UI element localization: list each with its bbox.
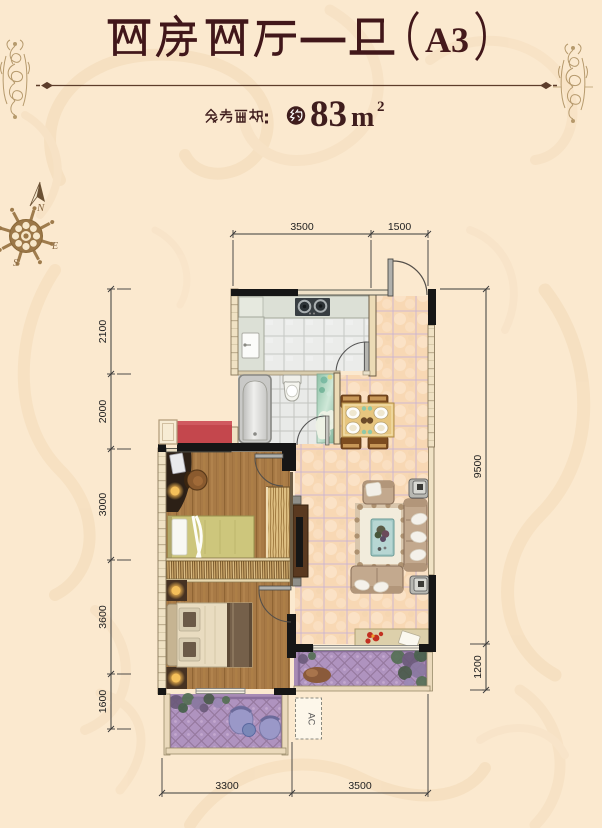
svg-text:2100: 2100 <box>97 320 109 344</box>
svg-text:3300: 3300 <box>215 780 239 792</box>
svg-text:1600: 1600 <box>97 690 109 714</box>
svg-text:1200: 1200 <box>472 655 484 679</box>
svg-text:S: S <box>13 258 18 269</box>
svg-text:m: m <box>351 102 374 133</box>
svg-text:3000: 3000 <box>97 493 109 517</box>
svg-text:1500: 1500 <box>388 221 412 233</box>
svg-text:2: 2 <box>377 99 385 115</box>
svg-text:9500: 9500 <box>472 455 484 479</box>
svg-text:AC: AC <box>307 713 317 726</box>
svg-text:A3: A3 <box>425 20 469 60</box>
svg-text:2000: 2000 <box>97 400 109 424</box>
svg-text:E: E <box>51 241 58 252</box>
svg-text:3500: 3500 <box>290 221 314 233</box>
svg-text:N: N <box>36 202 45 214</box>
svg-text:3500: 3500 <box>348 780 372 792</box>
svg-text:3600: 3600 <box>97 605 109 629</box>
svg-text:83: 83 <box>310 94 347 135</box>
